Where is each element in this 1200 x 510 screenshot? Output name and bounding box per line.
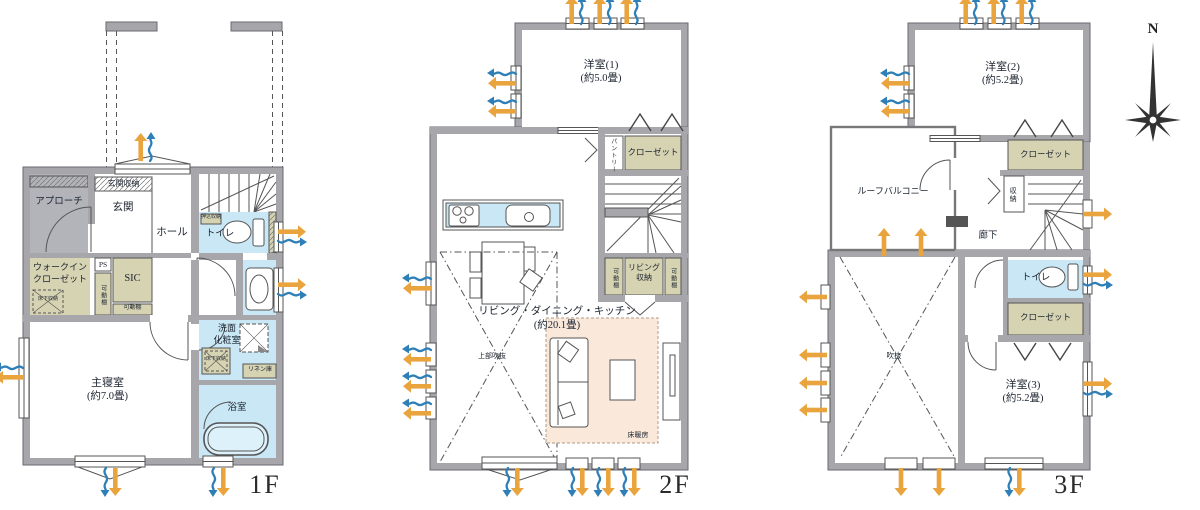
western-room-2-size: (約5.2畳) bbox=[940, 74, 1065, 88]
western-room-1-size: (約5.0畳) bbox=[540, 72, 662, 86]
room-label-living-storage: リビング 収納 bbox=[625, 263, 663, 284]
master-bedroom-size: (約7.0畳) bbox=[50, 390, 165, 404]
room-label-approach: アプローチ bbox=[30, 196, 88, 208]
living-storage-line1: リビング bbox=[625, 263, 663, 273]
coffee-table bbox=[610, 360, 635, 400]
western-room-1-name: 洋室(1) bbox=[540, 58, 662, 72]
room-label-floor-heating: 床暖房 bbox=[618, 431, 658, 440]
room-label-movable-shelf-right: 可動棚 bbox=[668, 263, 676, 293]
washroom-line1: 洗面 bbox=[199, 323, 255, 335]
room-label-movable-shelf-left: 可動棚 bbox=[610, 263, 618, 293]
compass-rose bbox=[1125, 42, 1181, 142]
room-label-movable-shelf-1: 可動棚 bbox=[98, 276, 106, 314]
room-label-western-room-3: 洋室(3) (約5.2畳) bbox=[962, 378, 1084, 406]
western-room-3-name: 洋室(3) bbox=[962, 378, 1084, 392]
kitchen-counter bbox=[443, 200, 563, 230]
room-label-closet-2f: クローゼット bbox=[625, 147, 681, 158]
room-label-underfloor-storage-wash: 床下収納 bbox=[202, 357, 230, 364]
stove bbox=[449, 205, 479, 226]
room-label-movable-shelf-2: 可動棚 bbox=[113, 305, 152, 313]
room-label-closet-upper: クローゼット bbox=[1008, 149, 1083, 160]
room-label-washroom: 洗面 化粧室 bbox=[199, 323, 255, 346]
room-label-sic: SIC bbox=[113, 272, 152, 286]
room-label-open-above: 上部吹抜 bbox=[472, 352, 512, 361]
upper-floor-projection bbox=[106, 22, 283, 167]
room-label-corridor: 廊下 bbox=[967, 230, 1009, 242]
sofa bbox=[550, 338, 588, 427]
room-label-storage-3f: 収納 bbox=[1008, 181, 1017, 209]
room-label-underfloor-storage-wic: 床下収納 bbox=[33, 297, 63, 304]
room-label-pantry: パントリー bbox=[608, 138, 616, 170]
floor-label-3f: 3F bbox=[1040, 468, 1100, 502]
room-label-closet-lower: クローゼット bbox=[1008, 312, 1083, 323]
room-label-master-bedroom: 主寝室 (約7.0畳) bbox=[50, 376, 165, 404]
tv-board bbox=[663, 343, 680, 420]
room-label-entrance: 玄関 bbox=[98, 201, 148, 215]
room-label-built-in-storage: 押込収納 bbox=[200, 215, 222, 222]
floor-label-1f: 1F bbox=[235, 468, 295, 502]
room-label-roof-balcony: ルーフバルコニー bbox=[833, 186, 953, 198]
room-label-ldk: リビング・ダイニング・キッチン (約20.1畳) bbox=[478, 305, 636, 332]
room-label-western-room-1: 洋室(1) (約5.0畳) bbox=[540, 58, 662, 86]
basin-nook bbox=[236, 253, 276, 315]
master-bedroom-name: 主寝室 bbox=[50, 376, 165, 390]
washroom-line2: 化粧室 bbox=[199, 335, 255, 347]
ldk-size: (約20.1畳) bbox=[478, 319, 636, 333]
living-storage-line2: 収納 bbox=[625, 273, 663, 283]
room-label-walk-in-closet: ウォークイン クローゼット bbox=[30, 262, 90, 285]
western-room-2-name: 洋室(2) bbox=[940, 60, 1065, 74]
room-label-bathroom: 浴室 bbox=[207, 402, 267, 414]
room-label-void: 吹抜 bbox=[873, 351, 915, 361]
room-label-toilet-3f: トイレ bbox=[1008, 272, 1064, 284]
room-label-toilet-1f: トイレ bbox=[201, 228, 239, 240]
wic-line2: クローゼット bbox=[30, 274, 90, 286]
room-label-western-room-2: 洋室(2) (約5.2畳) bbox=[940, 60, 1065, 88]
room-label-entrance-storage: 玄関収納 bbox=[95, 179, 152, 189]
bathroom-area bbox=[199, 385, 276, 458]
floor-label-2f: 2F bbox=[645, 468, 705, 502]
approach-area bbox=[30, 174, 95, 253]
floor-1f-drawing bbox=[0, 22, 307, 497]
bathtub bbox=[204, 423, 268, 455]
compass-north-label: N bbox=[1138, 20, 1168, 40]
room-label-linen: リネン庫 bbox=[244, 367, 276, 375]
room-label-pipe-space: PS bbox=[95, 260, 111, 270]
sink bbox=[506, 205, 550, 226]
room-label-hall: ホール bbox=[148, 226, 196, 240]
western-room-3-size: (約5.2畳) bbox=[962, 392, 1084, 406]
floorplan: アプローチ 玄関収納 玄関 ホール 押込収納 トイレ ウォークイン クローゼット… bbox=[0, 0, 1200, 510]
sliding-door-3f bbox=[930, 136, 980, 142]
wic-line1: ウォークイン bbox=[30, 262, 90, 274]
ldk-name: リビング・ダイニング・キッチン bbox=[478, 305, 636, 319]
sliding-door-2f bbox=[558, 128, 602, 134]
